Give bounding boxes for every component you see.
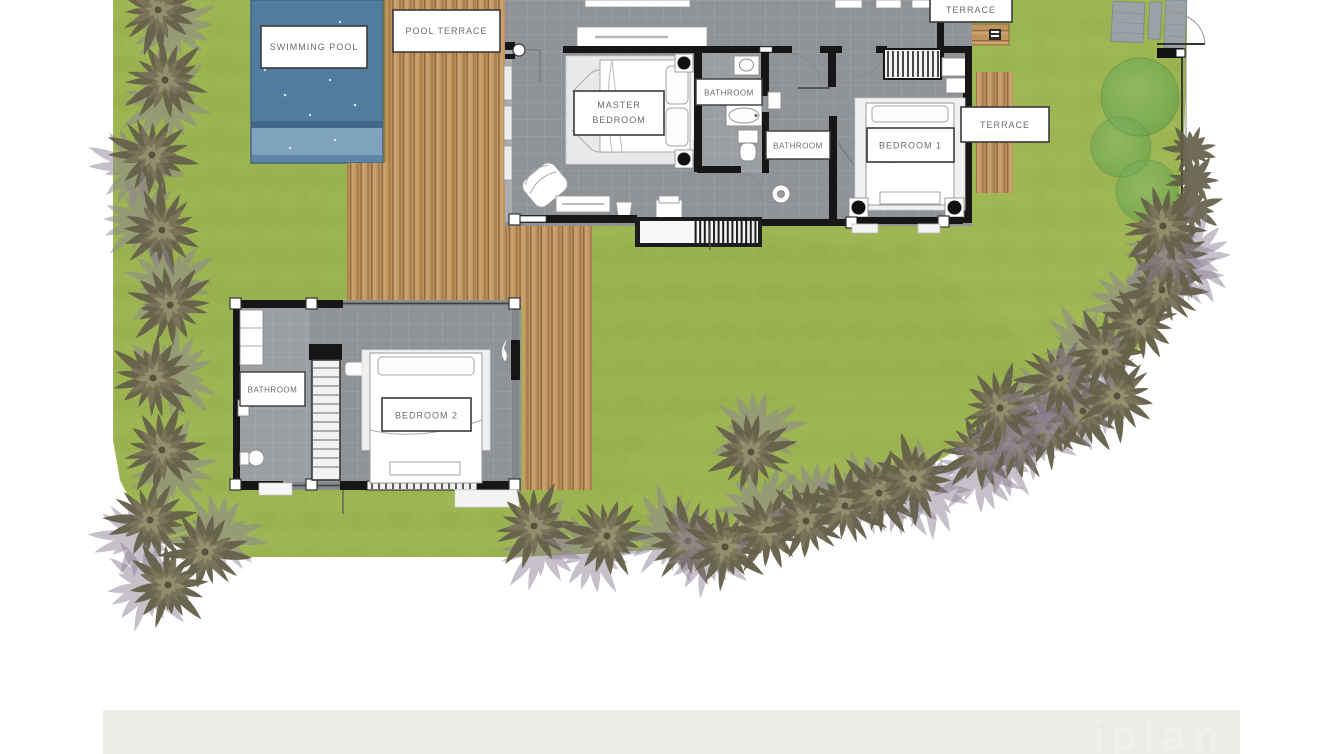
svg-text:TERRACE: TERRACE xyxy=(946,5,996,15)
svg-text:BEDROOM 1: BEDROOM 1 xyxy=(879,141,942,151)
svg-text:iplan: iplan xyxy=(1092,712,1225,754)
svg-text:TERRACE: TERRACE xyxy=(980,120,1030,130)
svg-text:BATHROOM: BATHROOM xyxy=(704,89,754,98)
svg-text:BEDROOM 2: BEDROOM 2 xyxy=(395,411,458,421)
svg-text:SWIMMING POOL: SWIMMING POOL xyxy=(270,42,359,52)
svg-text:BATHROOM: BATHROOM xyxy=(248,386,298,395)
svg-text:POOL TERRACE: POOL TERRACE xyxy=(405,26,487,36)
svg-text:MASTER: MASTER xyxy=(597,100,641,110)
svg-text:BEDROOM: BEDROOM xyxy=(592,115,646,125)
svg-text:BATHROOM: BATHROOM xyxy=(773,142,823,151)
